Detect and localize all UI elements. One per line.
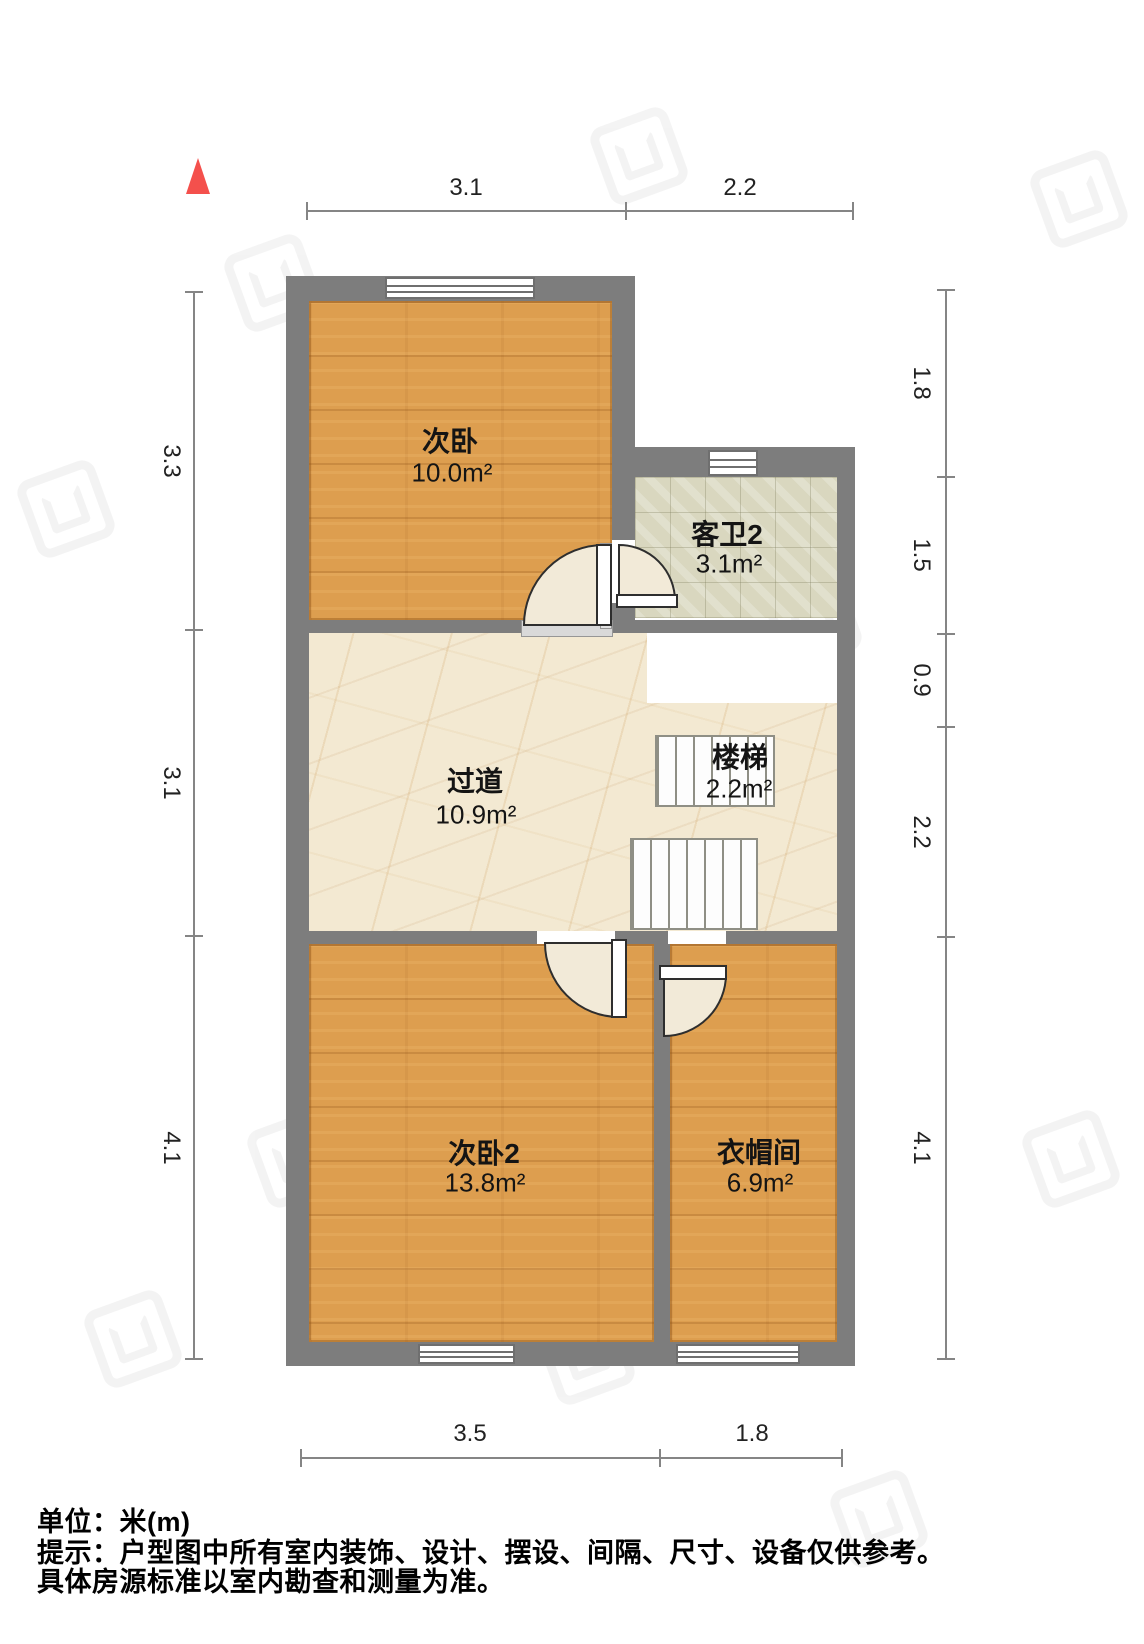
dimension-value: 1.8 bbox=[907, 366, 935, 399]
dimension-tick bbox=[625, 202, 627, 220]
north-arrow-icon bbox=[186, 158, 210, 194]
dimension-value: 2.2 bbox=[907, 815, 935, 848]
watermark-logo bbox=[1018, 1106, 1123, 1211]
void-notch bbox=[647, 633, 837, 703]
wall bbox=[286, 276, 309, 1366]
dimension-value: 0.9 bbox=[907, 663, 935, 696]
dimension-tick bbox=[937, 289, 955, 291]
room-hallway-name: 过道 bbox=[447, 760, 503, 800]
window-cloakroom bbox=[676, 1344, 800, 1364]
dimension-tick bbox=[659, 1449, 661, 1467]
dimension-tick bbox=[300, 1449, 302, 1467]
door-bathroom2 bbox=[608, 533, 693, 618]
room-bedroom2-name: 次卧2 bbox=[448, 1132, 520, 1172]
dimension-line-left bbox=[193, 292, 195, 1360]
room-bedroom1-area: 10.0m² bbox=[412, 458, 493, 489]
stairs-lower-flight bbox=[630, 838, 758, 930]
dimension-tick bbox=[185, 291, 203, 293]
dimension-tick bbox=[185, 1358, 203, 1360]
dimension-value: 3.1 bbox=[157, 766, 185, 799]
dimension-tick bbox=[306, 202, 308, 220]
floor-plan: 次卧 10.0m² 客卫2 3.1m² 过道 10.9m² 楼梯 2.2m² 次… bbox=[0, 0, 1144, 1644]
dimension-line-bottom bbox=[301, 1457, 843, 1459]
door-opening-cloakroom bbox=[668, 931, 726, 944]
dimension-tick bbox=[937, 1358, 955, 1360]
dimension-value: 2.2 bbox=[723, 174, 756, 202]
dimension-tick bbox=[937, 476, 955, 478]
dimension-tick bbox=[185, 935, 203, 937]
dimension-value: 3.3 bbox=[157, 444, 185, 477]
room-bedroom1-name: 次卧 bbox=[422, 420, 478, 460]
dimension-tick bbox=[937, 726, 955, 728]
dimension-line-top bbox=[307, 210, 854, 212]
watermark-logo bbox=[80, 1286, 185, 1391]
watermark-logo bbox=[13, 456, 118, 561]
window-bathroom2 bbox=[708, 450, 758, 476]
window-bedroom2 bbox=[418, 1344, 515, 1364]
room-stairs-area: 2.2m² bbox=[706, 774, 772, 805]
dimension-tick bbox=[937, 633, 955, 635]
door-cloakroom bbox=[654, 960, 749, 1055]
dimension-tick bbox=[841, 1449, 843, 1467]
door-bedroom2 bbox=[535, 935, 630, 1027]
watermark-logo bbox=[1026, 146, 1131, 251]
dimension-value: 1.5 bbox=[907, 538, 935, 571]
room-cloakroom-area: 6.9m² bbox=[727, 1168, 793, 1199]
dimension-tick bbox=[937, 936, 955, 938]
room-stairs-name: 楼梯 bbox=[712, 736, 768, 776]
room-bedroom2-area: 13.8m² bbox=[445, 1168, 526, 1199]
dimension-tick bbox=[852, 202, 854, 220]
window-bedroom1 bbox=[385, 277, 535, 299]
dimension-value: 4.1 bbox=[157, 1131, 185, 1164]
watermark-logo bbox=[586, 103, 691, 208]
tip-note-2: 具体房源标准以室内勘查和测量为准。 bbox=[37, 1560, 505, 1599]
dimension-value: 3.1 bbox=[449, 174, 482, 202]
dimension-value: 1.8 bbox=[735, 1420, 768, 1448]
dimension-line-right bbox=[945, 290, 947, 1360]
door-bedroom1 bbox=[510, 530, 620, 640]
dimension-value: 3.5 bbox=[453, 1420, 486, 1448]
wall bbox=[837, 447, 855, 1366]
room-bathroom2-area: 3.1m² bbox=[696, 549, 762, 580]
room-cloakroom-name: 衣帽间 bbox=[717, 1131, 801, 1171]
dimension-tick bbox=[185, 629, 203, 631]
room-bathroom2-name: 客卫2 bbox=[691, 513, 763, 553]
dimension-value: 4.1 bbox=[907, 1131, 935, 1164]
room-hallway-area: 10.9m² bbox=[436, 800, 517, 831]
